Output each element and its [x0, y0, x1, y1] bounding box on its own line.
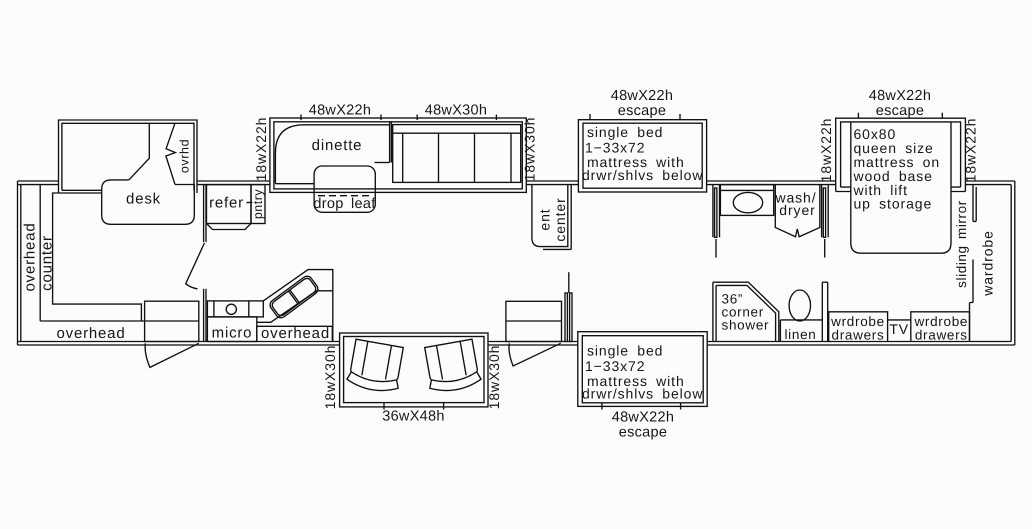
svg-text:overhead: overhead [57, 325, 126, 342]
svg-text:48wX22h: 48wX22h [309, 103, 372, 119]
svg-text:ent: ent [537, 208, 553, 230]
svg-text:18wX22h: 18wX22h [963, 118, 979, 183]
svg-text:wardrobe: wardrobe [980, 230, 996, 297]
svg-text:counter: counter [39, 235, 56, 291]
svg-text:TV: TV [889, 321, 909, 337]
svg-text:desk: desk [126, 191, 161, 208]
svg-text:escape: escape [619, 425, 668, 441]
svg-text:1−33x72: 1−33x72 [585, 358, 645, 374]
svg-text:18wX30h: 18wX30h [486, 345, 502, 410]
svg-text:pntry: pntry [251, 189, 265, 220]
svg-text:dryer: dryer [779, 202, 815, 218]
svg-text:shower: shower [722, 318, 770, 333]
svg-text:single bed: single bed [587, 343, 663, 359]
svg-text:48wX22h: 48wX22h [612, 410, 675, 426]
svg-text:36wX48h: 36wX48h [382, 409, 445, 425]
svg-text:1−33x72: 1−33x72 [585, 139, 645, 155]
svg-text:ovrhd: ovrhd [178, 139, 192, 173]
svg-text:drwr/shlvs below: drwr/shlvs below [582, 385, 703, 401]
svg-text:escape: escape [876, 103, 925, 119]
svg-text:48wX30h: 48wX30h [425, 103, 488, 119]
svg-text:drwr/shlvs below: drwr/shlvs below [582, 167, 703, 183]
svg-text:18wX30h: 18wX30h [522, 117, 538, 182]
svg-text:overhead: overhead [261, 325, 330, 342]
svg-text:single bed: single bed [587, 124, 663, 140]
svg-text:micro: micro [212, 325, 253, 342]
svg-text:linen: linen [784, 327, 816, 342]
svg-text:escape: escape [618, 103, 667, 119]
svg-text:drawers: drawers [832, 328, 885, 343]
svg-text:48wX22h: 48wX22h [869, 88, 932, 104]
svg-text:sliding mirror: sliding mirror [954, 200, 969, 288]
svg-text:refer: refer [209, 195, 244, 212]
svg-text:drawers: drawers [915, 328, 968, 343]
svg-text:drop leaf: drop leaf [313, 196, 376, 212]
svg-text:48wX22h: 48wX22h [611, 88, 674, 104]
svg-text:18wX22h: 18wX22h [253, 117, 269, 182]
svg-text:overhead: overhead [22, 223, 39, 292]
svg-text:center: center [552, 197, 568, 241]
svg-text:18wX30h: 18wX30h [322, 345, 338, 410]
svg-text:18wX22h: 18wX22h [818, 118, 834, 183]
svg-text:dinette: dinette [312, 137, 363, 154]
svg-text:up storage: up storage [854, 196, 933, 212]
